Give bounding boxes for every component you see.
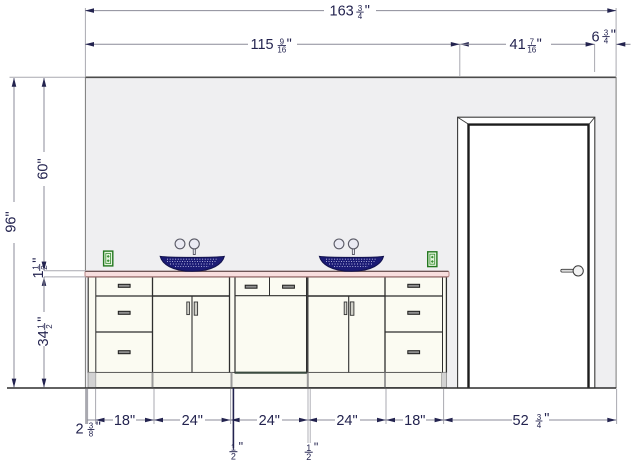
- svg-text:": ": [314, 440, 318, 454]
- svg-text:115: 115: [251, 37, 274, 53]
- svg-text:8: 8: [89, 430, 94, 439]
- svg-text:2: 2: [76, 422, 84, 438]
- svg-text:16: 16: [527, 46, 536, 55]
- svg-text:": ": [537, 36, 542, 52]
- svg-text:18": 18": [404, 413, 425, 429]
- svg-text:4: 4: [604, 37, 609, 46]
- svg-text:": ": [287, 36, 292, 52]
- svg-text:2: 2: [45, 324, 54, 329]
- svg-text:": ": [544, 411, 549, 427]
- svg-text:": ": [36, 317, 52, 322]
- svg-text:24": 24": [182, 413, 203, 429]
- svg-text:": ": [96, 420, 101, 436]
- svg-text:2: 2: [231, 452, 236, 462]
- svg-text:24": 24": [259, 413, 280, 429]
- svg-text:16: 16: [277, 46, 286, 55]
- svg-text:4: 4: [537, 421, 542, 430]
- svg-text:6: 6: [592, 30, 600, 46]
- svg-text:": ": [31, 258, 47, 263]
- svg-text:96": 96": [4, 211, 20, 232]
- svg-text:1: 1: [31, 270, 47, 278]
- svg-text:": ": [239, 440, 243, 454]
- svg-text:34: 34: [36, 330, 52, 346]
- svg-text:18": 18": [114, 413, 135, 429]
- svg-text:2: 2: [306, 452, 311, 462]
- svg-text:163: 163: [330, 3, 354, 19]
- svg-text:": ": [611, 28, 616, 44]
- svg-text:24": 24": [336, 413, 357, 429]
- svg-text:2: 2: [40, 265, 49, 270]
- svg-text:52: 52: [513, 413, 529, 429]
- svg-text:": ": [365, 3, 370, 19]
- svg-text:60": 60": [36, 158, 52, 179]
- svg-text:41: 41: [510, 37, 526, 53]
- svg-text:4: 4: [358, 12, 363, 21]
